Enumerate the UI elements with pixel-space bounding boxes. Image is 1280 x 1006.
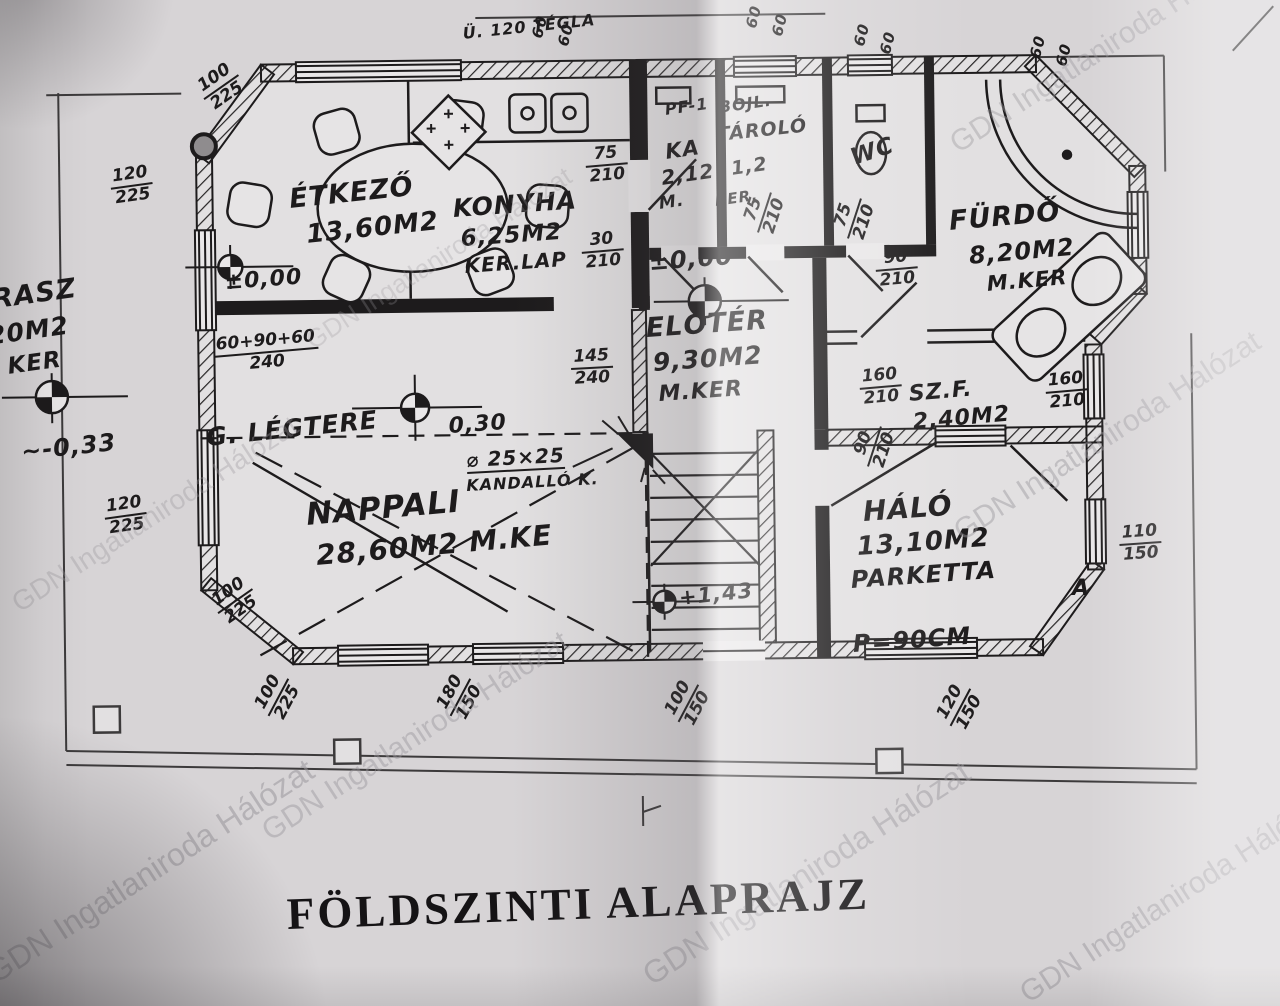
photographed-floorplan-page: ÉTKEZŐ13,60M2KONYHA6,25M2KER.LAPPF-1BOJL… [0, 0, 1280, 1006]
floorplan-drawing [0, 0, 1280, 1006]
terrace-posts [94, 697, 903, 783]
